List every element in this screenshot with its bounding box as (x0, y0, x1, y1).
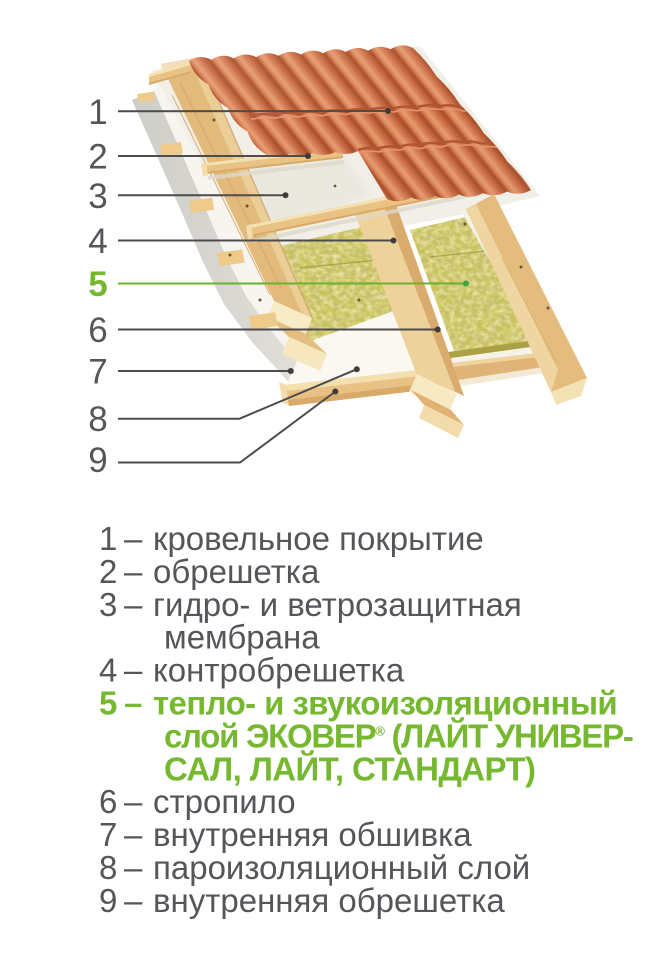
svg-text:–: – (124, 553, 143, 590)
svg-text:7: 7 (99, 816, 117, 853)
svg-text:мембрана: мембрана (164, 619, 320, 656)
svg-text:6: 6 (99, 783, 117, 820)
svg-text:–: – (124, 783, 143, 820)
svg-text:внутренняя обрешетка: внутренняя обрешетка (153, 882, 505, 919)
svg-text:5: 5 (88, 265, 107, 304)
svg-text:2: 2 (99, 553, 117, 590)
svg-text:САЛ, ЛАЙТ, СТАНДАРТ): САЛ, ЛАЙТ, СТАНДАРТ) (164, 749, 535, 787)
svg-text:3: 3 (99, 586, 117, 623)
svg-text:–: – (124, 685, 142, 722)
svg-text:8: 8 (99, 849, 117, 886)
svg-text:9: 9 (88, 441, 107, 480)
svg-text:4: 4 (88, 222, 107, 261)
svg-text:3: 3 (88, 177, 107, 216)
svg-text:обрешетка: обрешетка (153, 553, 320, 590)
svg-text:–: – (124, 586, 143, 623)
svg-text:внутренняя обшивка: внутренняя обшивка (153, 816, 472, 853)
svg-text:7: 7 (88, 353, 107, 392)
svg-text:пароизоляционный слой: пароизоляционный слой (153, 849, 530, 886)
svg-text:–: – (124, 849, 143, 886)
svg-text:1: 1 (88, 93, 107, 132)
svg-text:кровельное покрытие: кровельное покрытие (153, 520, 484, 557)
svg-text:слой ЭКОВЕР® (ЛАЙТ УНИВЕР-: слой ЭКОВЕР® (ЛАЙТ УНИВЕР- (164, 716, 633, 754)
svg-text:9: 9 (99, 882, 117, 919)
svg-text:–: – (124, 652, 143, 689)
svg-text:6: 6 (88, 311, 107, 350)
svg-text:–: – (124, 520, 143, 557)
svg-text:–: – (124, 816, 143, 853)
svg-text:4: 4 (99, 652, 117, 689)
svg-text:1: 1 (99, 520, 117, 557)
svg-text:2: 2 (88, 138, 107, 177)
svg-text:тепло- и звукоизоляционный: тепло- и звукоизоляционный (153, 685, 617, 722)
svg-text:5: 5 (99, 685, 117, 722)
svg-text:стропило: стропило (153, 783, 296, 820)
svg-text:–: – (124, 882, 143, 919)
svg-text:8: 8 (88, 400, 107, 439)
svg-text:гидро- и ветрозащитная: гидро- и ветрозащитная (153, 586, 522, 623)
svg-text:контробрешетка: контробрешетка (153, 652, 405, 689)
